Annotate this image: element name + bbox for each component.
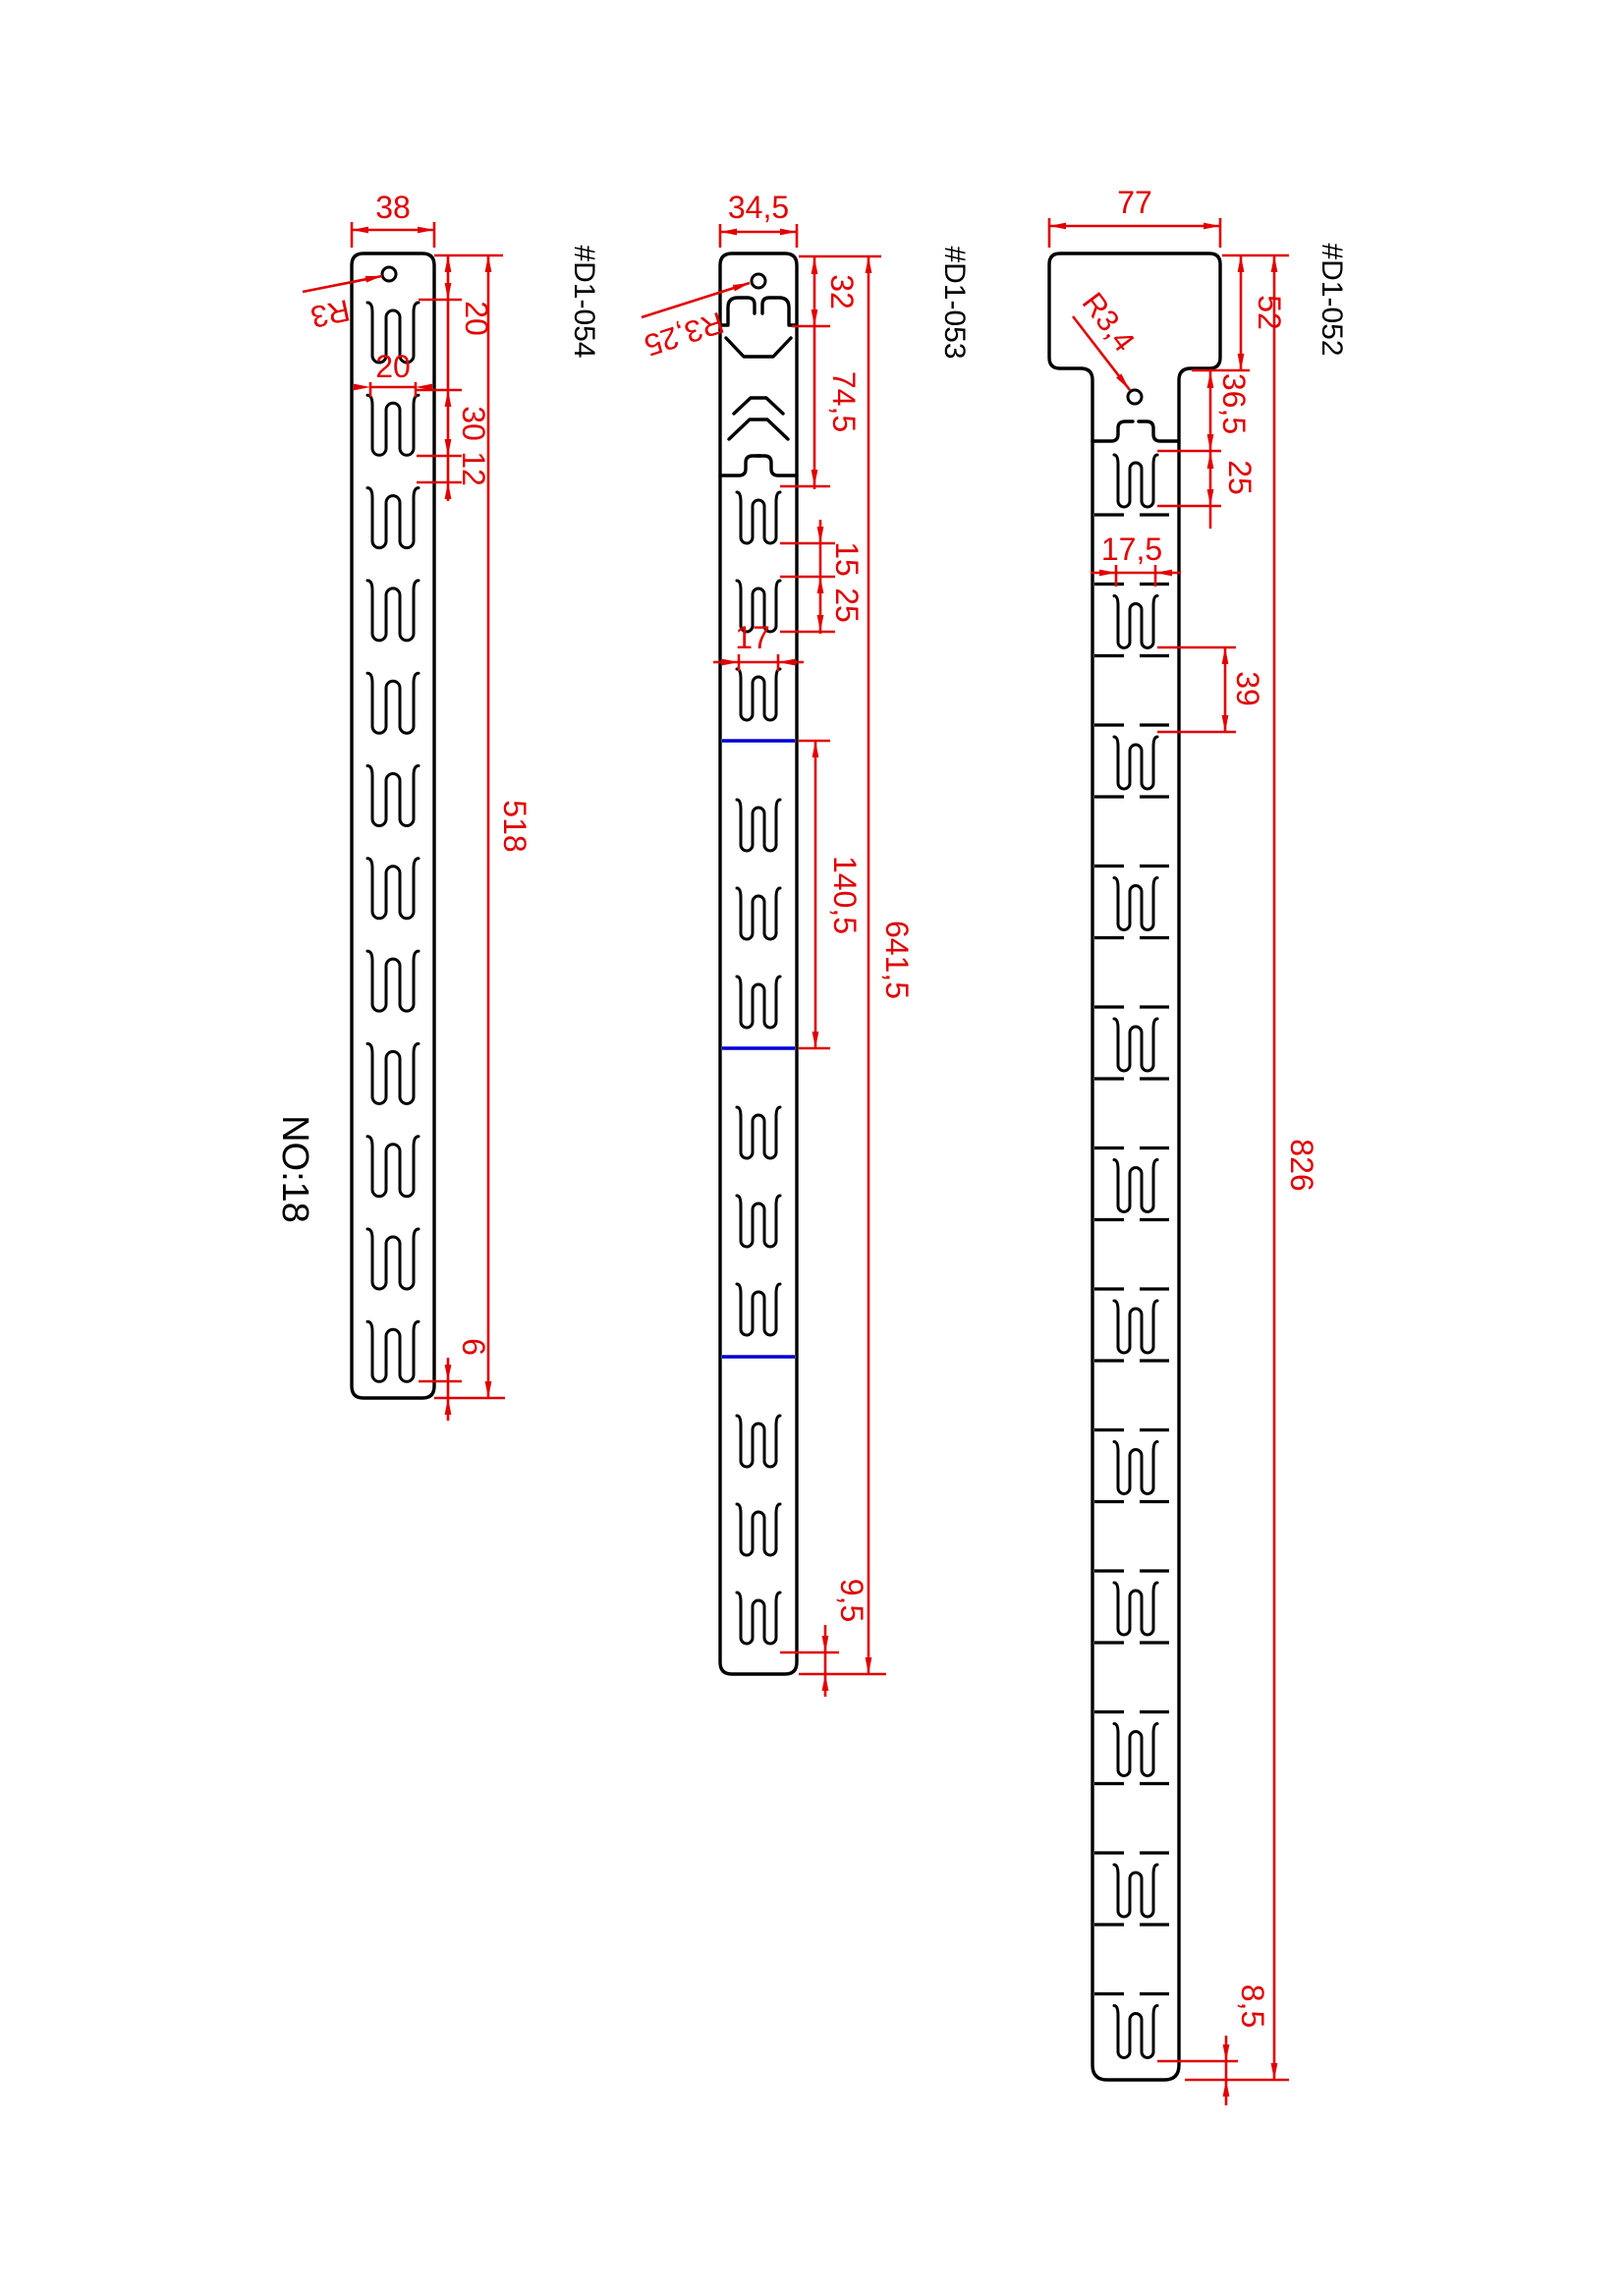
dim-slot-width: 20	[375, 349, 411, 384]
arrowhead	[822, 1636, 829, 1652]
dim-head-height: 52	[1252, 295, 1287, 330]
arrowhead	[812, 257, 818, 274]
slot-cutout	[1114, 737, 1157, 789]
cad-drawing-canvas: 38 20 20 30 12 518 6 R3 #D1-054 NO:18 34…	[0, 0, 1624, 2294]
arrowhead	[817, 577, 824, 593]
dim-overall-length-3: 826	[1284, 1139, 1319, 1191]
slot-cutout	[737, 669, 780, 720]
slot-cutout	[367, 673, 419, 733]
arrowhead	[1207, 371, 1214, 388]
slot-cutout	[367, 581, 419, 641]
mounting-hole-d1-053	[752, 274, 765, 288]
dim-top-offset: 20	[459, 301, 494, 336]
slot-cutout	[1114, 455, 1157, 507]
dim-width: 38	[375, 190, 411, 225]
sheet-number-note: NO:18	[274, 1115, 315, 1223]
slot-cutout	[367, 395, 419, 455]
arrowhead	[722, 659, 739, 666]
arrowhead	[1099, 570, 1116, 577]
mounting-hole-d1-054	[382, 267, 396, 281]
slot-cutout	[1114, 1724, 1157, 1776]
part-outline-d1-054	[352, 253, 434, 1398]
arrowhead	[812, 470, 818, 486]
arrowhead	[1204, 223, 1220, 230]
dim-overall-length: 518	[497, 800, 532, 852]
slot-cutout	[367, 859, 419, 919]
slot-cutout	[737, 1504, 780, 1555]
dim-slot-height-3: 25	[1222, 460, 1258, 495]
arrowhead	[1271, 255, 1278, 272]
dim-slot-width-2: 17	[735, 620, 770, 655]
hook-pair-right	[756, 456, 797, 476]
vee-notch	[726, 338, 791, 357]
slot-cutouts	[367, 303, 1157, 2058]
mounting-hole-d1-052	[1128, 390, 1142, 404]
bend-dash-lines	[1094, 515, 1177, 1994]
slot-cutout	[737, 800, 780, 851]
slot-cutout	[737, 1284, 780, 1335]
slot-cutout	[367, 1043, 419, 1103]
bracket-notch-right	[762, 298, 797, 325]
part-outlines	[352, 253, 1220, 2080]
dim-slot-height: 30	[456, 406, 491, 441]
arrowhead	[445, 439, 452, 456]
part-outline-d1-053	[720, 253, 797, 1674]
hook-pair-right-d1-052	[1139, 421, 1179, 441]
slot-cutout	[737, 888, 780, 939]
arrowhead	[1271, 2063, 1278, 2080]
slot-cutout	[1114, 2006, 1157, 2058]
dim-overall-length-2: 641,5	[879, 921, 915, 999]
slot-cutout	[367, 488, 419, 548]
dim-width-3: 77	[1117, 185, 1152, 220]
dim-top-offset-3: 36,5	[1216, 373, 1252, 434]
slot-cutout	[367, 951, 419, 1011]
arrowhead	[1223, 2080, 1230, 2097]
section-break-lines	[722, 741, 795, 1357]
slot-cutout	[367, 766, 419, 826]
dim-bottom-margin-3: 8,5	[1235, 1985, 1270, 2028]
arrowhead	[418, 227, 434, 234]
dim-head-section: 74,5	[826, 371, 862, 432]
slot-cutout	[1114, 1583, 1157, 1635]
part-number-d1-053: #D1-053	[938, 246, 971, 359]
arrowhead	[866, 1657, 872, 1674]
dim-bottom-margin-2: 9,5	[834, 1579, 869, 1622]
arrowhead	[1207, 489, 1214, 506]
slot-cutout	[737, 1196, 780, 1247]
hook-pair-left-d1-052	[1092, 421, 1133, 441]
arrowhead	[445, 283, 452, 300]
slot-cutout	[367, 1137, 419, 1197]
arrowhead	[1207, 434, 1214, 451]
arrowhead	[720, 229, 737, 236]
slot-cutout	[1114, 1442, 1157, 1494]
arrowhead	[822, 1674, 829, 1691]
arrowhead	[1155, 570, 1172, 577]
arrowhead	[866, 256, 872, 273]
chevron-upper	[734, 398, 783, 414]
dim-slot-height-2: 25	[829, 587, 865, 623]
slot-cutout	[737, 492, 780, 543]
dim-hole-radius-3: R3,4	[1076, 286, 1142, 358]
slot-cutout	[1114, 1019, 1157, 1071]
arrowhead	[812, 309, 818, 326]
dim-slot-gap: 12	[456, 451, 491, 486]
arrowhead	[352, 227, 368, 234]
chevron-lower	[729, 420, 788, 439]
arrowhead	[817, 615, 824, 632]
arrowhead	[485, 255, 492, 272]
slot-cutout	[737, 977, 780, 1028]
arrowhead	[1222, 647, 1229, 664]
slot-cutout	[1114, 878, 1157, 930]
slot-cutout	[737, 1416, 780, 1467]
hook-pair-left	[720, 456, 760, 476]
arrowhead	[445, 1398, 452, 1415]
drawing-sheet: 38 20 20 30 12 518 6 R3 #D1-054 NO:18 34…	[0, 0, 1624, 2294]
arrowhead	[812, 741, 819, 757]
dim-hole-radius: R3	[308, 293, 353, 334]
arrowhead	[1223, 2044, 1230, 2061]
dimension-arrowheads	[352, 223, 1277, 2097]
arrowhead	[778, 659, 795, 666]
arrowhead	[485, 1381, 492, 1398]
slot-cutout	[737, 1107, 780, 1158]
dim-width-2: 34,5	[728, 190, 789, 225]
arrowhead	[445, 255, 452, 272]
dim-slot-gap-2: 15	[829, 541, 865, 577]
arrowhead	[365, 276, 382, 283]
slot-cutout	[1114, 1160, 1157, 1212]
arrowhead	[1238, 255, 1245, 272]
arrowhead	[1049, 223, 1066, 230]
slot-cutout	[737, 1593, 780, 1644]
arrowhead	[445, 1365, 452, 1381]
dim-section-length: 140,5	[827, 856, 863, 934]
arrowhead	[354, 384, 370, 391]
arrowhead	[445, 390, 452, 407]
arrowhead	[817, 527, 824, 543]
slot-cutout	[1114, 1865, 1157, 1917]
arrowhead	[812, 1032, 819, 1048]
part-number-d1-052: #D1-052	[1316, 243, 1348, 356]
dim-slot-spacing: 39	[1230, 671, 1265, 706]
dim-top-offset-2: 32	[824, 274, 860, 309]
part-number-d1-054: #D1-054	[568, 245, 600, 358]
bracket-notch-left	[720, 298, 755, 325]
dim-bottom-margin: 6	[456, 1338, 491, 1356]
arrowhead	[445, 482, 452, 499]
dim-slot-width-3: 17,5	[1101, 532, 1162, 567]
slot-cutout	[1114, 596, 1157, 648]
arrowhead	[733, 283, 750, 291]
arrowhead	[1238, 354, 1245, 370]
arrowhead	[780, 229, 797, 236]
arrowhead	[1207, 452, 1214, 469]
arrowhead	[1222, 715, 1229, 732]
slot-cutout	[1114, 1301, 1157, 1353]
slot-cutout	[367, 1321, 419, 1381]
slot-cutout	[367, 1229, 419, 1289]
